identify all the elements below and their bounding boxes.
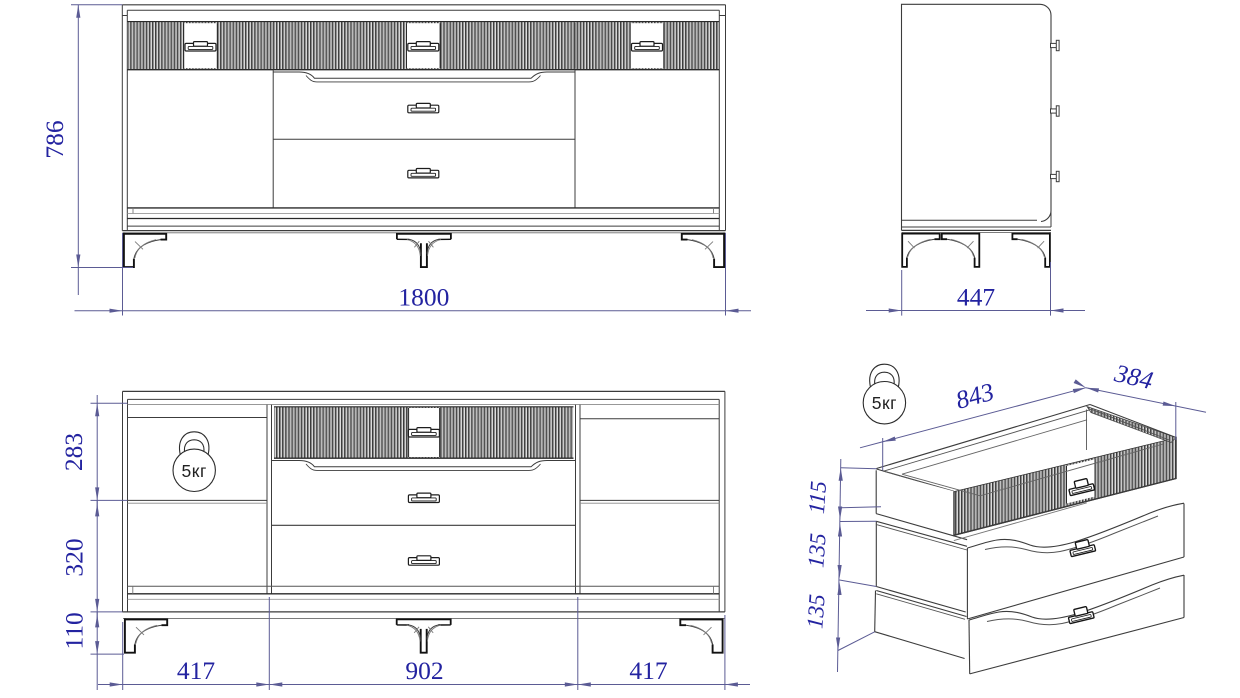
svg-text:110: 110 [60, 612, 89, 649]
svg-text:1800: 1800 [398, 283, 449, 312]
svg-text:786: 786 [40, 120, 69, 158]
svg-text:135: 135 [802, 593, 829, 629]
svg-text:417: 417 [629, 656, 668, 685]
svg-text:447: 447 [957, 283, 996, 312]
svg-text:283: 283 [59, 433, 88, 471]
svg-text:115: 115 [804, 480, 831, 514]
svg-text:902: 902 [405, 656, 443, 685]
svg-text:135: 135 [803, 532, 830, 568]
svg-text:320: 320 [60, 538, 89, 576]
svg-text:417: 417 [177, 656, 216, 685]
